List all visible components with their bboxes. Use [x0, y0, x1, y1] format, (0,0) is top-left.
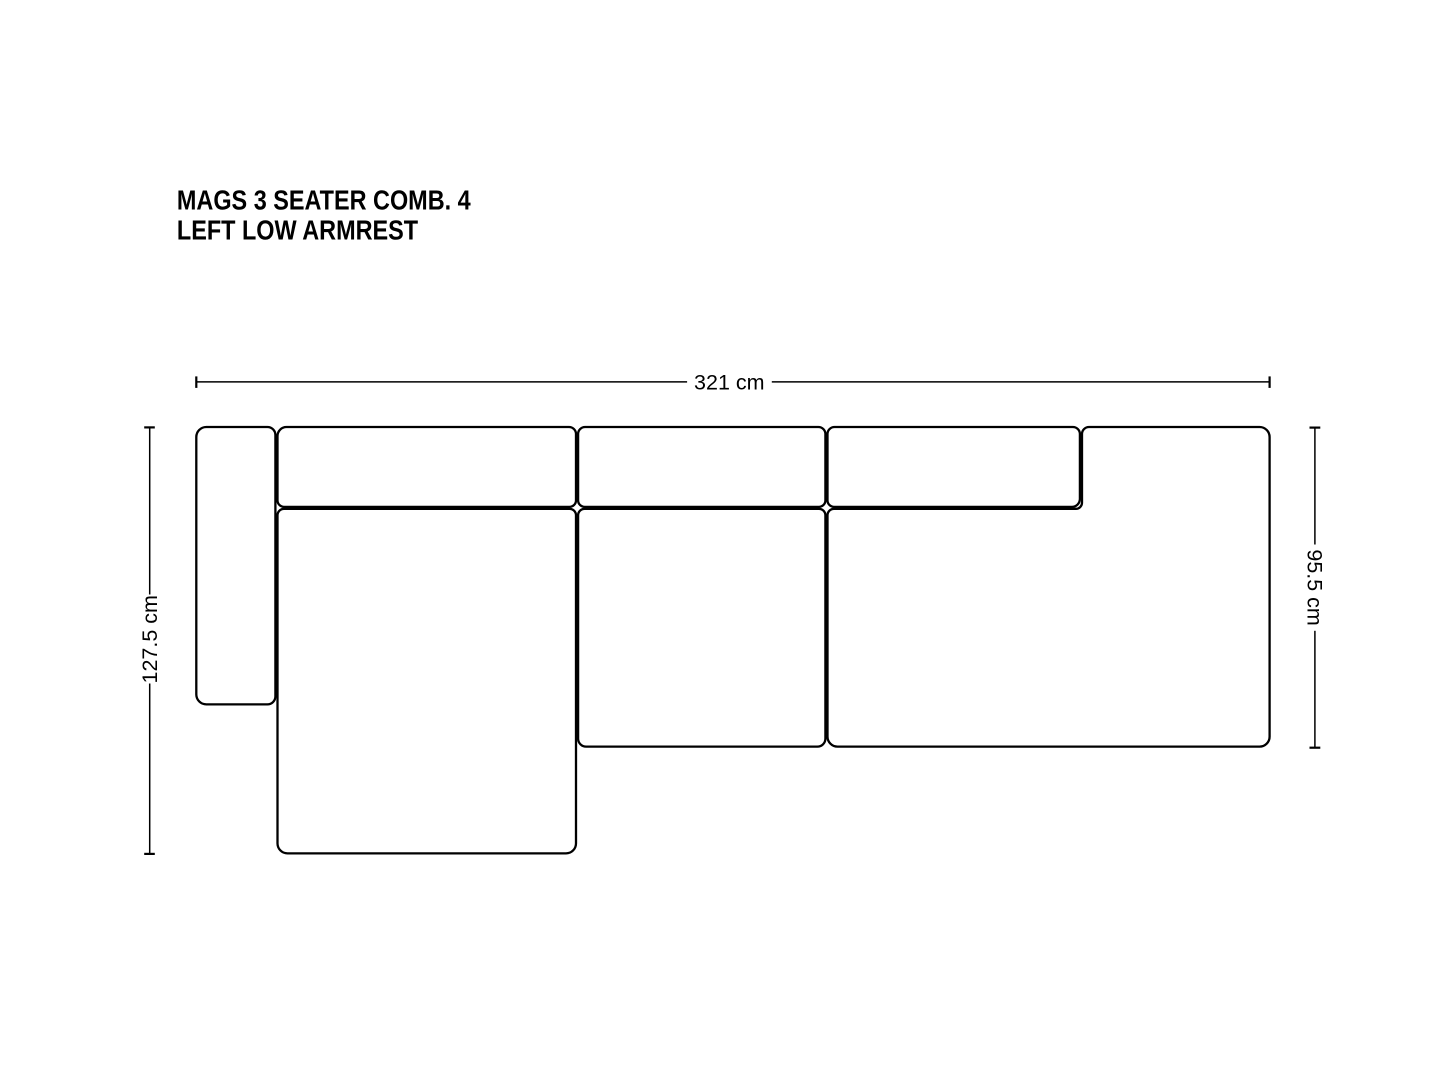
svg-text:95.5 cm: 95.5 cm — [1303, 549, 1327, 625]
svg-text:127.5 cm: 127.5 cm — [138, 595, 162, 683]
svg-text:LEFT LOW ARMREST: LEFT LOW ARMREST — [177, 216, 418, 246]
svg-text:MAGS 3 SEATER COMB. 4: MAGS 3 SEATER COMB. 4 — [177, 186, 471, 216]
svg-text:321 cm: 321 cm — [694, 370, 765, 394]
